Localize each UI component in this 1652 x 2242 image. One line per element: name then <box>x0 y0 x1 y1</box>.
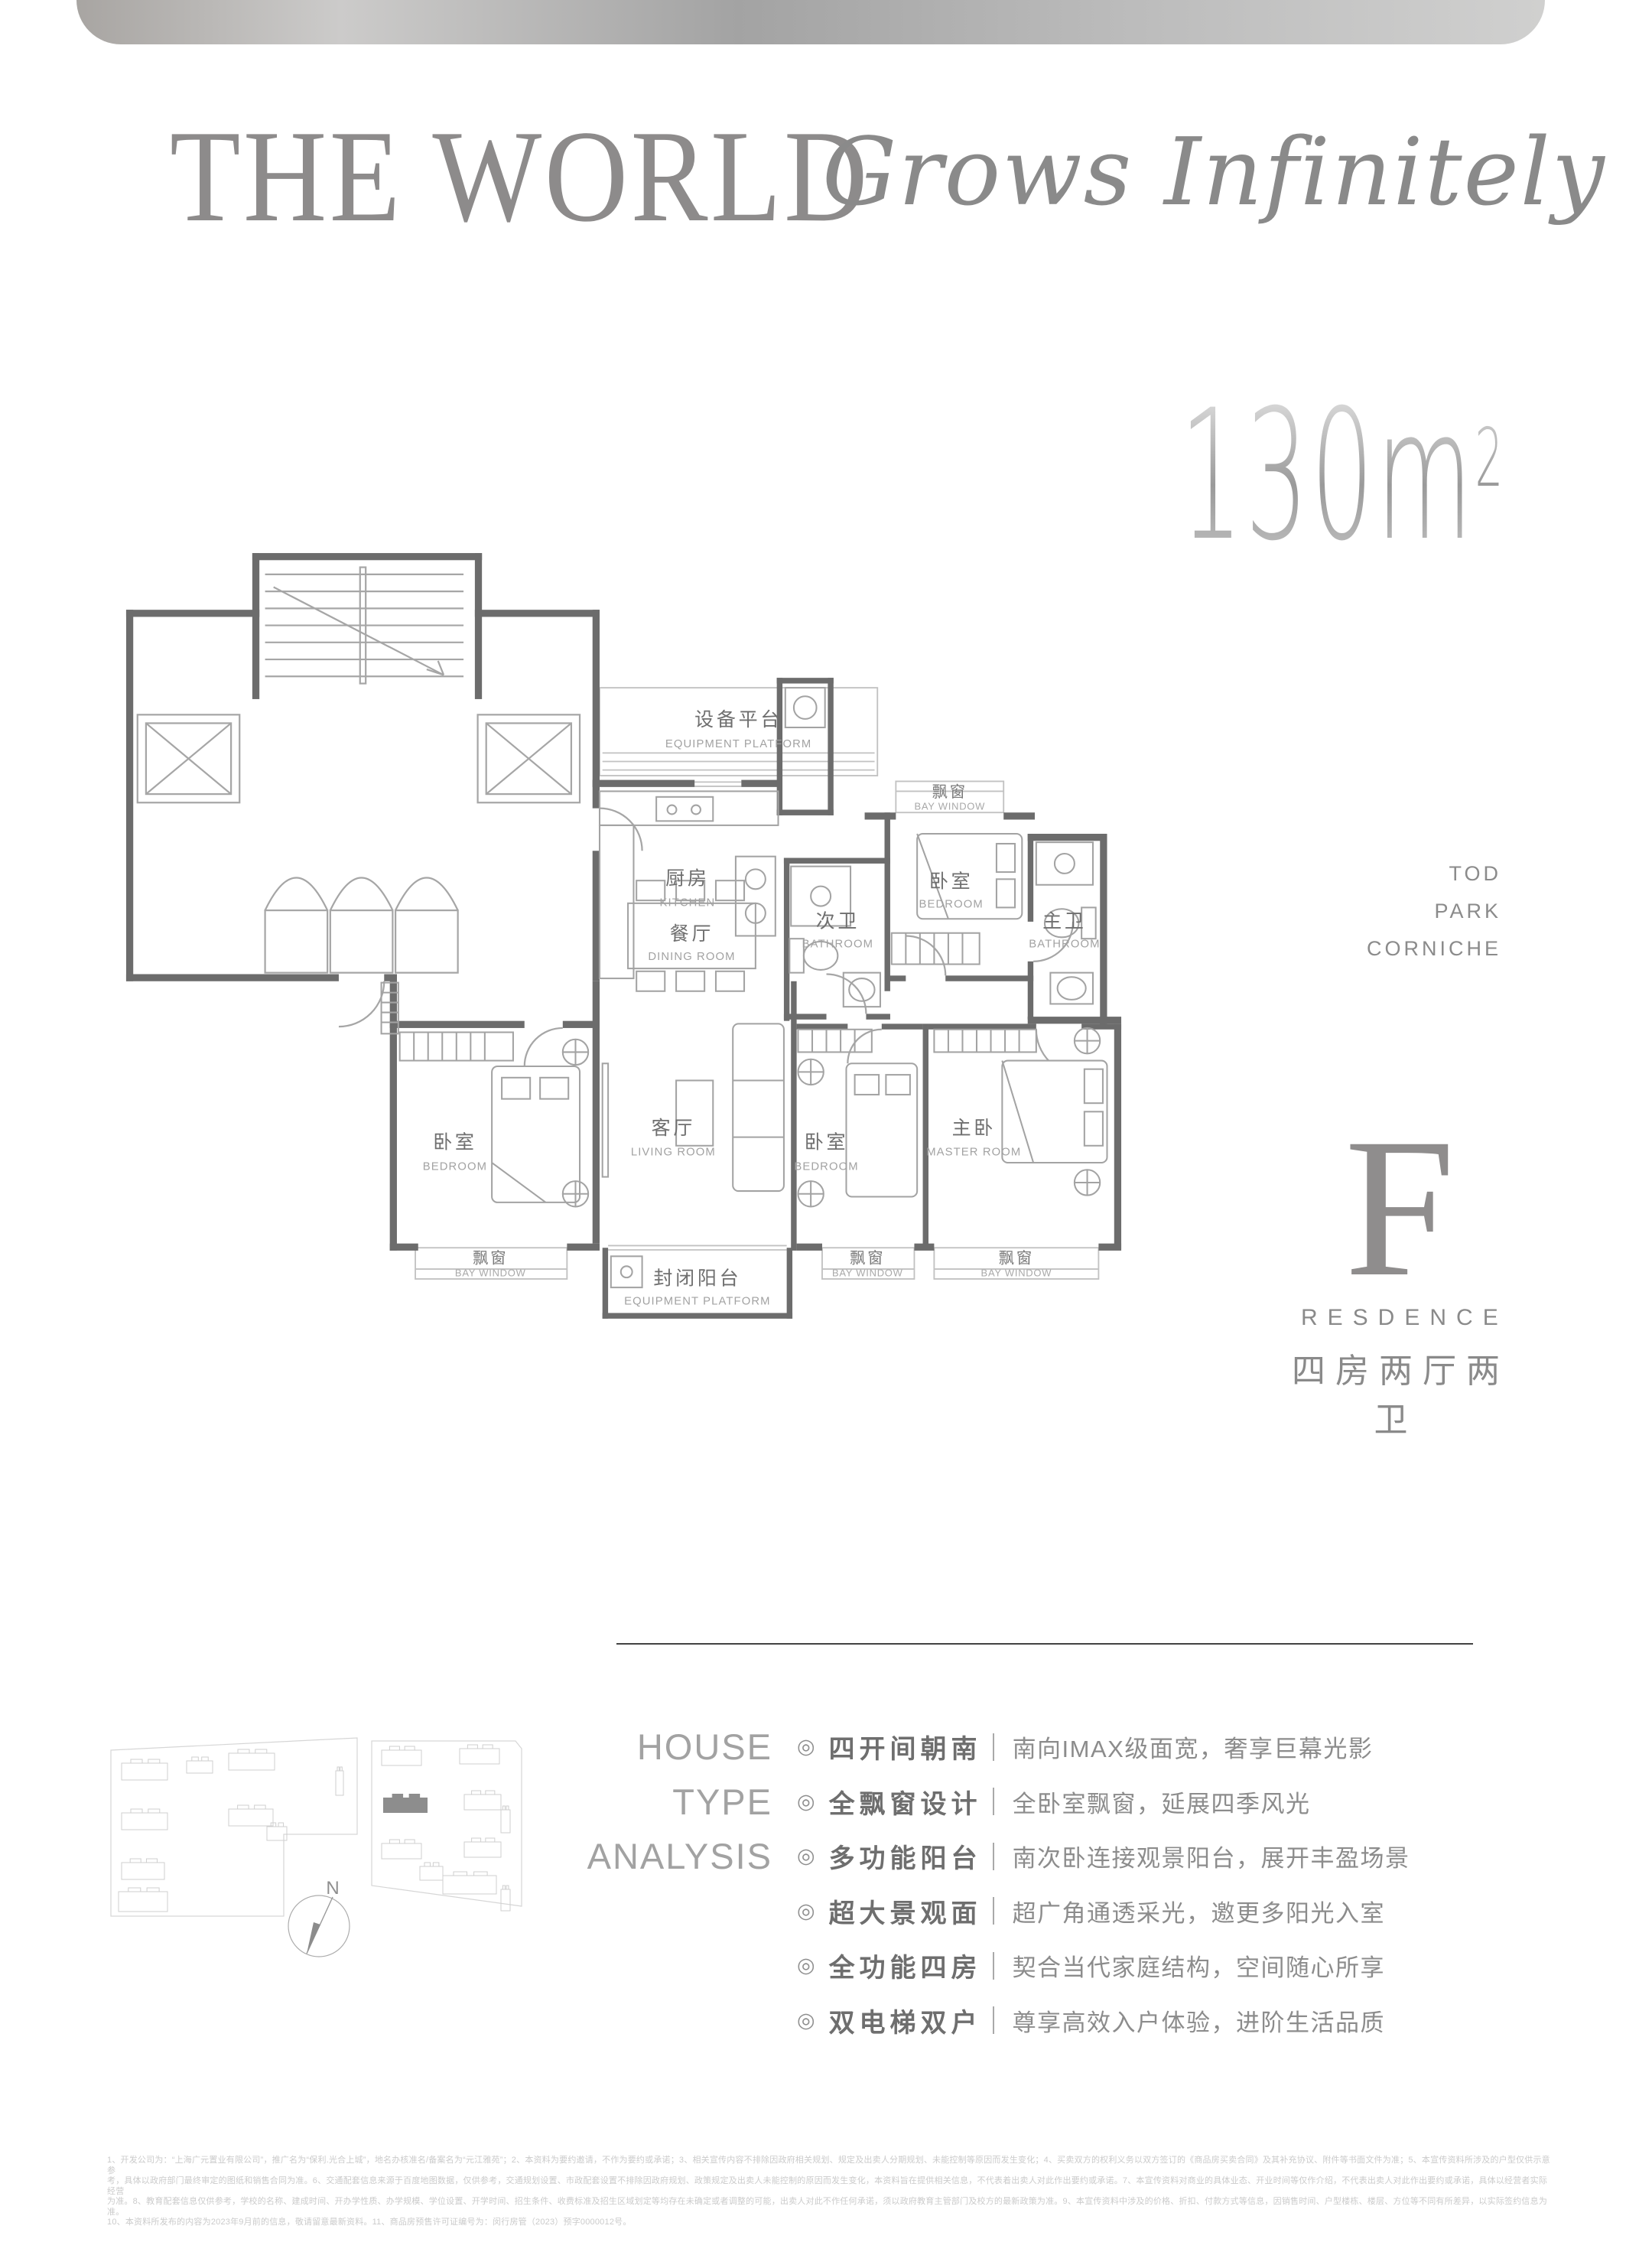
disclaimer-line: 考，具体以政府部门最终审定的图纸和销售合同为准。6、交通配套信息来源于百度地图数… <box>107 2176 1553 2197</box>
floor-plan-drawing: ? <box>106 553 1247 1347</box>
plan-walls <box>126 553 1121 1319</box>
room-label-living: 客厅 <box>652 1118 695 1139</box>
room-labels: 设备平台 EQUIPMENT PLATFORM 厨房 KITCHEN 餐厅 DI… <box>423 709 1101 1307</box>
legal-disclaimer: 1、开发公司为：“上海广元置业有限公司”，推广名为“保利.光合上城”，地名办核准… <box>107 2156 1553 2228</box>
analysis-item-title: 超大景观面 <box>829 1892 982 1930</box>
bullet-icon: ◎ <box>797 1791 815 1812</box>
bay-window-label: 飘窗 <box>850 1250 885 1267</box>
compass-north-label: N <box>326 1878 339 1899</box>
site-parcels <box>111 1738 522 1916</box>
disclaimer-line: 1、开发公司为：“上海广元置业有限公司”，推广名为“保利.光合上城”，地名办核准… <box>107 2156 1553 2176</box>
divider-bar <box>993 1952 994 1980</box>
area-unit: m <box>1376 372 1475 581</box>
site-building <box>460 1745 499 1764</box>
bay-window-label: 飘窗 <box>999 1250 1034 1267</box>
site-building <box>122 1809 167 1830</box>
site-building <box>122 1759 167 1780</box>
bay-window-label: 飘窗 <box>473 1250 508 1267</box>
svg-text:BAY WINDOW: BAY WINDOW <box>914 801 985 812</box>
analysis-item-title: 全飘窗设计 <box>829 1783 982 1821</box>
divider-bar <box>993 1897 994 1925</box>
area-value: 130 <box>1179 372 1376 581</box>
analysis-item-title: 全功能四房 <box>829 1947 982 1984</box>
site-building <box>443 1872 496 1894</box>
equipment-platform-area <box>600 688 877 776</box>
page-subtitle: Grows Infinitely <box>822 98 1606 247</box>
analysis-item-desc: 超广角通透采光，邀更多阳光入室 <box>1013 1894 1386 1928</box>
analysis-item: ◎四开间朝南南向IMAX级面宽，奢享巨幕光影 <box>797 1720 1410 1775</box>
bullet-icon: ◎ <box>797 1955 815 1976</box>
residence-type: 四房两厅两卫 <box>1263 1343 1528 1441</box>
room-label-master: 主卧 <box>952 1118 996 1139</box>
analysis-item: ◎全功能四房契合当代家庭结构，空间随心所享 <box>797 1938 1410 1993</box>
analysis-item-title: 双电梯双户 <box>829 2002 982 2039</box>
location-tags: TOD PARK CORNICHE <box>1367 855 1501 968</box>
svg-text:LIVING ROOM: LIVING ROOM <box>631 1147 716 1159</box>
room-label-bedroom-south: 卧室 <box>805 1131 848 1153</box>
residence-label: RESDENCE <box>1291 1305 1501 1331</box>
analysis-item: ◎多功能阳台南次卧连接观景阳台，展开丰盈场景 <box>797 1829 1410 1884</box>
site-building <box>336 1767 343 1795</box>
location-tag: PARK <box>1367 893 1501 930</box>
svg-text:BAY WINDOW: BAY WINDOW <box>832 1267 903 1278</box>
site-building <box>382 1746 421 1765</box>
area-exponent: 2 <box>1475 412 1503 505</box>
divider-bar <box>993 2006 994 2034</box>
svg-text:BAY WINDOW: BAY WINDOW <box>455 1267 526 1278</box>
location-tag: TOD <box>1367 855 1501 893</box>
room-label-bath-master: 主卫 <box>1042 910 1086 932</box>
analysis-list: ◎四开间朝南南向IMAX级面宽，奢享巨幕光影◎全飘窗设计全卧室飘窗，延展四季风光… <box>797 1720 1410 2048</box>
staircase <box>265 568 463 684</box>
unit-area-badge: 130m2 <box>1179 386 1503 566</box>
svg-text:BEDROOM: BEDROOM <box>919 898 983 910</box>
analysis-item-title: 四开间朝南 <box>829 1728 982 1765</box>
analysis-heading: HOUSE TYPE ANALYSIS <box>558 1720 772 1884</box>
analysis-item-desc: 全卧室飘窗，延展四季风光 <box>1013 1785 1311 1819</box>
analysis-item-desc: 南向IMAX级面宽，奢享巨幕光影 <box>1013 1729 1374 1764</box>
bullet-icon: ◎ <box>797 1846 815 1866</box>
site-building <box>229 1749 275 1770</box>
analysis-item-title: 多功能阳台 <box>829 1837 982 1875</box>
location-tag: CORNICHE <box>1367 930 1501 968</box>
disclaimer-line: 为准。8、教育配套信息仅供参考，学校的名称、建成时间、开办学性质、办学规模、学位… <box>107 2197 1553 2218</box>
divider-bar <box>993 1733 994 1761</box>
bullet-icon: ◎ <box>797 1736 815 1757</box>
residence-letter: F <box>1345 1118 1455 1297</box>
disclaimer-line: 10、本资料所发布的内容为2023年9月前的信息，敬请留意最新资料。11、商品房… <box>107 2218 1553 2228</box>
svg-text:BEDROOM: BEDROOM <box>423 1160 487 1173</box>
site-building <box>119 1888 167 1912</box>
bay-window-label: 飘窗 <box>932 783 967 801</box>
room-label-equipment-platform: 设备平台 <box>694 709 782 731</box>
analysis-item: ◎超大景观面超广角通透采光，邀更多阳光入室 <box>797 1884 1410 1939</box>
site-building <box>122 1859 164 1879</box>
svg-text:BATHROOM: BATHROOM <box>802 938 873 950</box>
section-divider <box>616 1643 1473 1645</box>
room-label-balcony: 封闭阳台 <box>653 1267 741 1289</box>
analysis-item-desc: 南次卧连接观景阳台，展开丰盈场景 <box>1013 1839 1410 1873</box>
site-building <box>464 1791 501 1810</box>
bullet-icon: ◎ <box>797 2010 815 2031</box>
entry-closets <box>265 877 458 972</box>
bullet-icon: ◎ <box>797 1901 815 1921</box>
divider-bar <box>993 1843 994 1870</box>
elevator-shafts <box>138 714 580 802</box>
site-building-highlighted <box>383 1794 428 1813</box>
svg-text:BATHROOM: BATHROOM <box>1029 938 1100 950</box>
room-label-kitchen: 厨房 <box>665 868 709 890</box>
compass-icon: N <box>288 1878 350 1957</box>
site-building <box>501 1806 510 1833</box>
analysis-item: ◎全飘窗设计全卧室飘窗，延展四季风光 <box>797 1775 1410 1830</box>
site-building <box>501 1886 510 1911</box>
site-building <box>187 1757 213 1773</box>
site-building <box>420 1863 443 1880</box>
svg-text:MASTER ROOM: MASTER ROOM <box>926 1147 1021 1159</box>
svg-text:EQUIPMENT PLATFORM: EQUIPMENT PLATFORM <box>665 738 811 750</box>
analysis-item-desc: 契合当代家庭结构，空间随心所享 <box>1013 1948 1386 1983</box>
room-label-bedroom-north: 卧室 <box>929 870 973 892</box>
svg-text:BEDROOM: BEDROOM <box>794 1160 858 1173</box>
room-label-bath-second: 次卫 <box>816 910 860 932</box>
top-gradient-banner <box>76 0 1545 44</box>
room-label-bedroom-west: 卧室 <box>433 1131 476 1153</box>
site-building <box>229 1805 273 1826</box>
site-buildings <box>119 1745 510 1912</box>
site-building <box>382 1840 421 1859</box>
site-building <box>464 1838 501 1857</box>
page-title: THE WORLD <box>170 98 870 255</box>
svg-text:KITCHEN: KITCHEN <box>659 897 715 909</box>
svg-text:DINING ROOM: DINING ROOM <box>648 951 735 963</box>
room-label-dining: 餐厅 <box>670 923 714 945</box>
divider-bar <box>993 1788 994 1815</box>
plan-furniture <box>382 688 1107 1287</box>
analysis-item-desc: 尊享高效入户体验，进阶生活品质 <box>1013 2003 1386 2038</box>
site-plan-map: N <box>106 1736 525 1992</box>
analysis-item: ◎双电梯双户尊享高效入户体验，进阶生活品质 <box>797 1993 1410 2048</box>
svg-text:BAY WINDOW: BAY WINDOW <box>981 1267 1052 1278</box>
svg-text:EQUIPMENT PLATFORM: EQUIPMENT PLATFORM <box>624 1295 770 1307</box>
